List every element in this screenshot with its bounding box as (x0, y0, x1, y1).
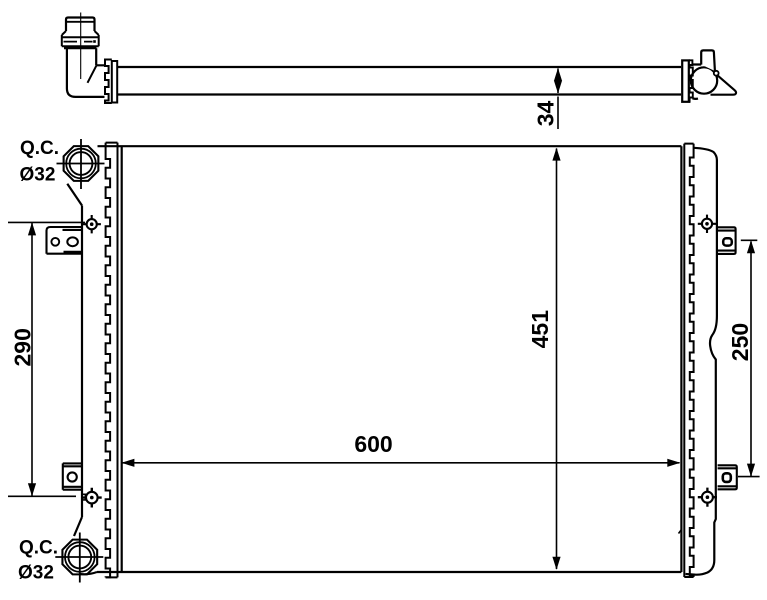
svg-text:451: 451 (527, 310, 553, 349)
svg-text:Ø32: Ø32 (18, 562, 54, 583)
svg-text:250: 250 (727, 323, 753, 361)
svg-text:Ø32: Ø32 (20, 165, 56, 186)
svg-text:Q.C.: Q.C. (20, 138, 59, 159)
svg-text:Q.C.: Q.C. (19, 538, 58, 559)
svg-text:600: 600 (354, 431, 392, 457)
svg-text:290: 290 (10, 328, 36, 366)
svg-text:34: 34 (533, 101, 559, 127)
